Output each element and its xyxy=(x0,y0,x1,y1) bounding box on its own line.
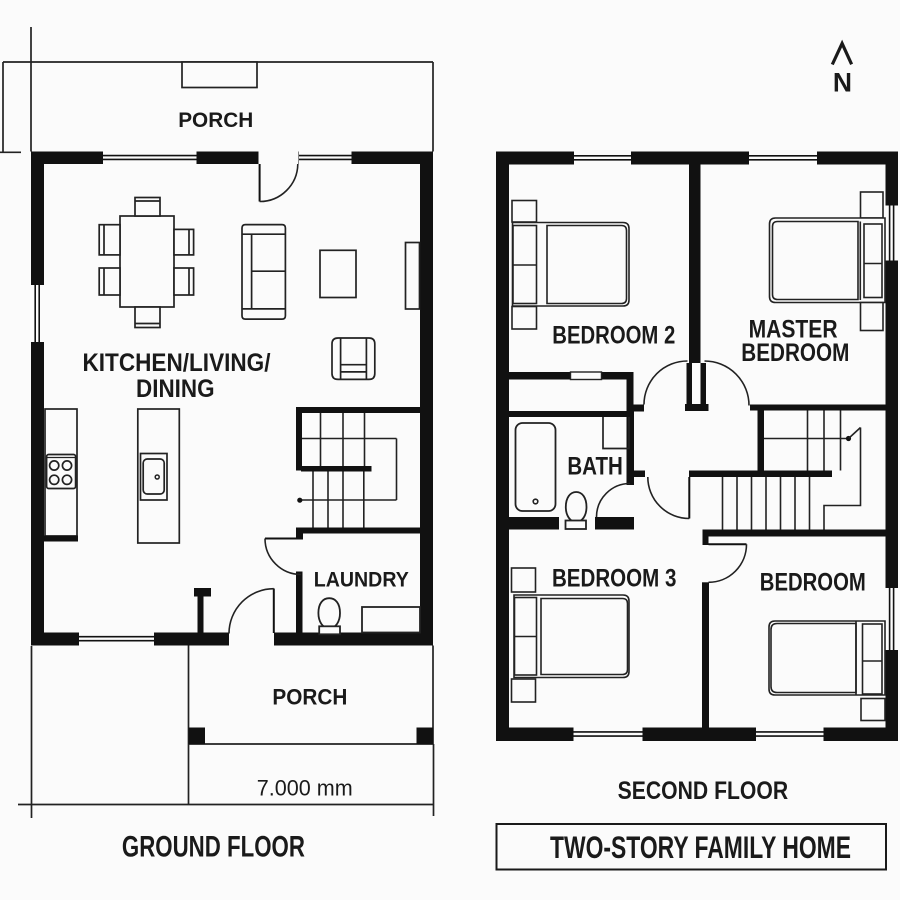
svg-text:BEDROOM 3: BEDROOM 3 xyxy=(552,565,677,593)
svg-text:BEDROOM: BEDROOM xyxy=(741,339,849,367)
svg-text:KITCHEN/LIVING/: KITCHEN/LIVING/ xyxy=(83,349,271,377)
svg-text:N: N xyxy=(833,68,852,98)
svg-text:GROUND FLOOR: GROUND FLOOR xyxy=(122,831,305,864)
svg-text:BEDROOM 2: BEDROOM 2 xyxy=(552,321,675,349)
svg-text:BATH: BATH xyxy=(567,452,623,480)
svg-text:7.000 mm: 7.000 mm xyxy=(257,776,353,801)
svg-text:SECOND FLOOR: SECOND FLOOR xyxy=(618,777,789,805)
svg-text:TWO-STORY FAMILY HOME: TWO-STORY FAMILY HOME xyxy=(550,830,851,865)
svg-text:DINING: DINING xyxy=(136,375,215,403)
svg-text:BEDROOM: BEDROOM xyxy=(760,569,866,597)
svg-text:PORCH: PORCH xyxy=(272,684,347,709)
svg-text:LAUNDRY: LAUNDRY xyxy=(314,568,409,592)
svg-text:PORCH: PORCH xyxy=(178,108,253,132)
